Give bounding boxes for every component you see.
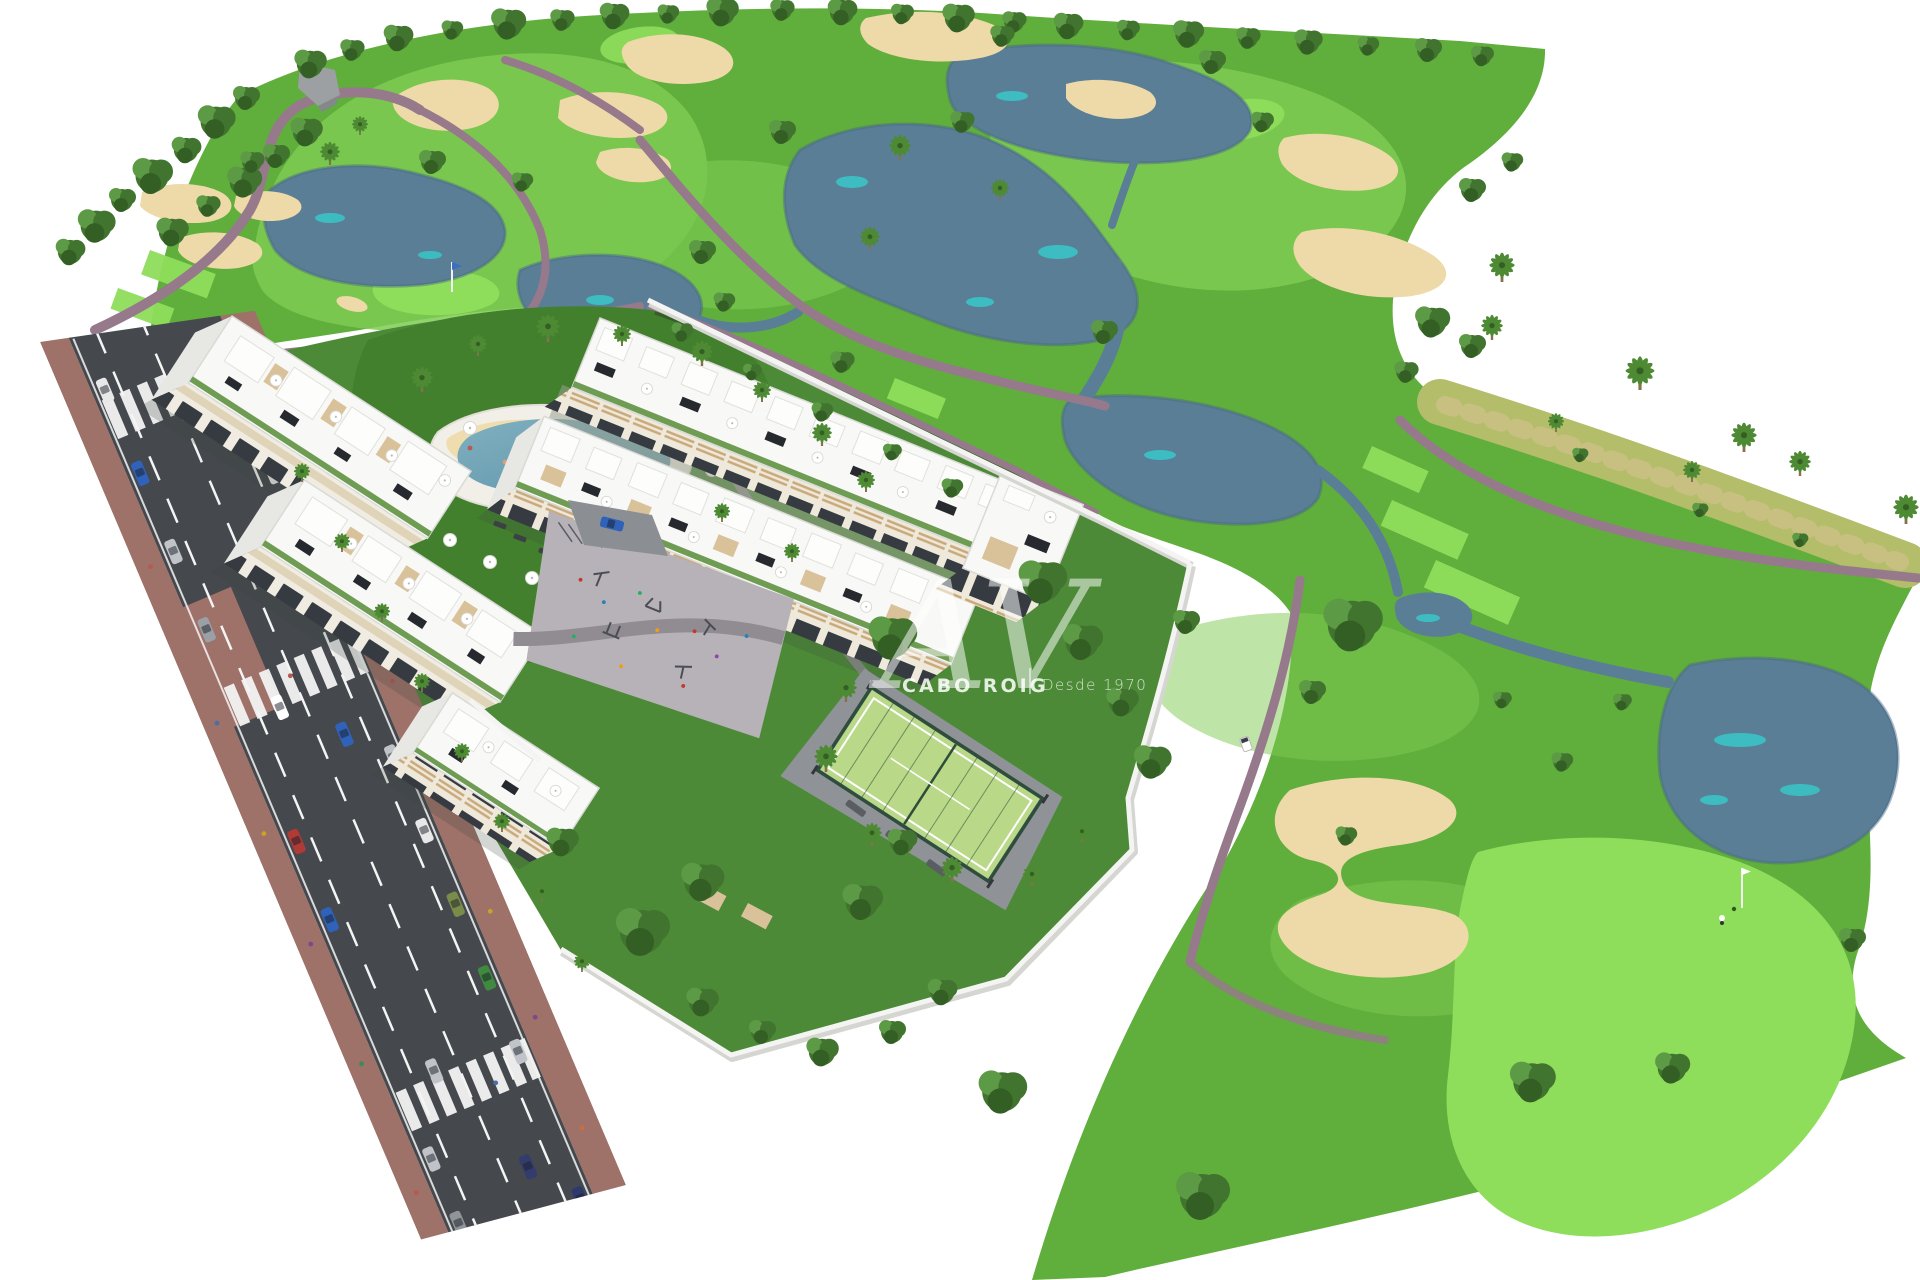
palm-icon: [1626, 356, 1655, 390]
pond-right: [1659, 658, 1898, 863]
tree-icon: [1502, 152, 1524, 171]
palm-icon: [1893, 495, 1918, 524]
palm-icon: [1489, 253, 1514, 282]
tree-icon: [1459, 178, 1486, 202]
tree-icon: [1415, 306, 1450, 337]
tree-icon: [806, 1038, 838, 1067]
palm-icon: [1789, 451, 1811, 476]
tree-icon: [78, 209, 116, 243]
tree-icon: [172, 137, 202, 163]
parasol-icon: [444, 534, 457, 547]
palm-icon: [1731, 423, 1756, 452]
tree-icon: [979, 1070, 1028, 1113]
aerial-development-render: AV CABO ROIG Desde 1970: [0, 0, 1920, 1280]
parasol-icon: [484, 556, 497, 569]
logo-monogram: AV: [868, 550, 1103, 724]
tree-icon: [1459, 334, 1486, 358]
tree-icon: [56, 239, 86, 265]
tree-icon: [109, 188, 136, 212]
watermark-tagline: Desde 1970: [1042, 676, 1147, 694]
tree-icon: [879, 1020, 906, 1044]
watermark-brand: CABO ROIG: [902, 675, 1048, 697]
person-icon: [468, 446, 473, 451]
main-green: [1447, 838, 1856, 1237]
scene-canvas: AV CABO ROIG Desde 1970: [0, 0, 1920, 1280]
parasol-icon: [464, 422, 477, 435]
parasol-icon: [526, 572, 539, 585]
palm-icon: [1481, 315, 1503, 340]
